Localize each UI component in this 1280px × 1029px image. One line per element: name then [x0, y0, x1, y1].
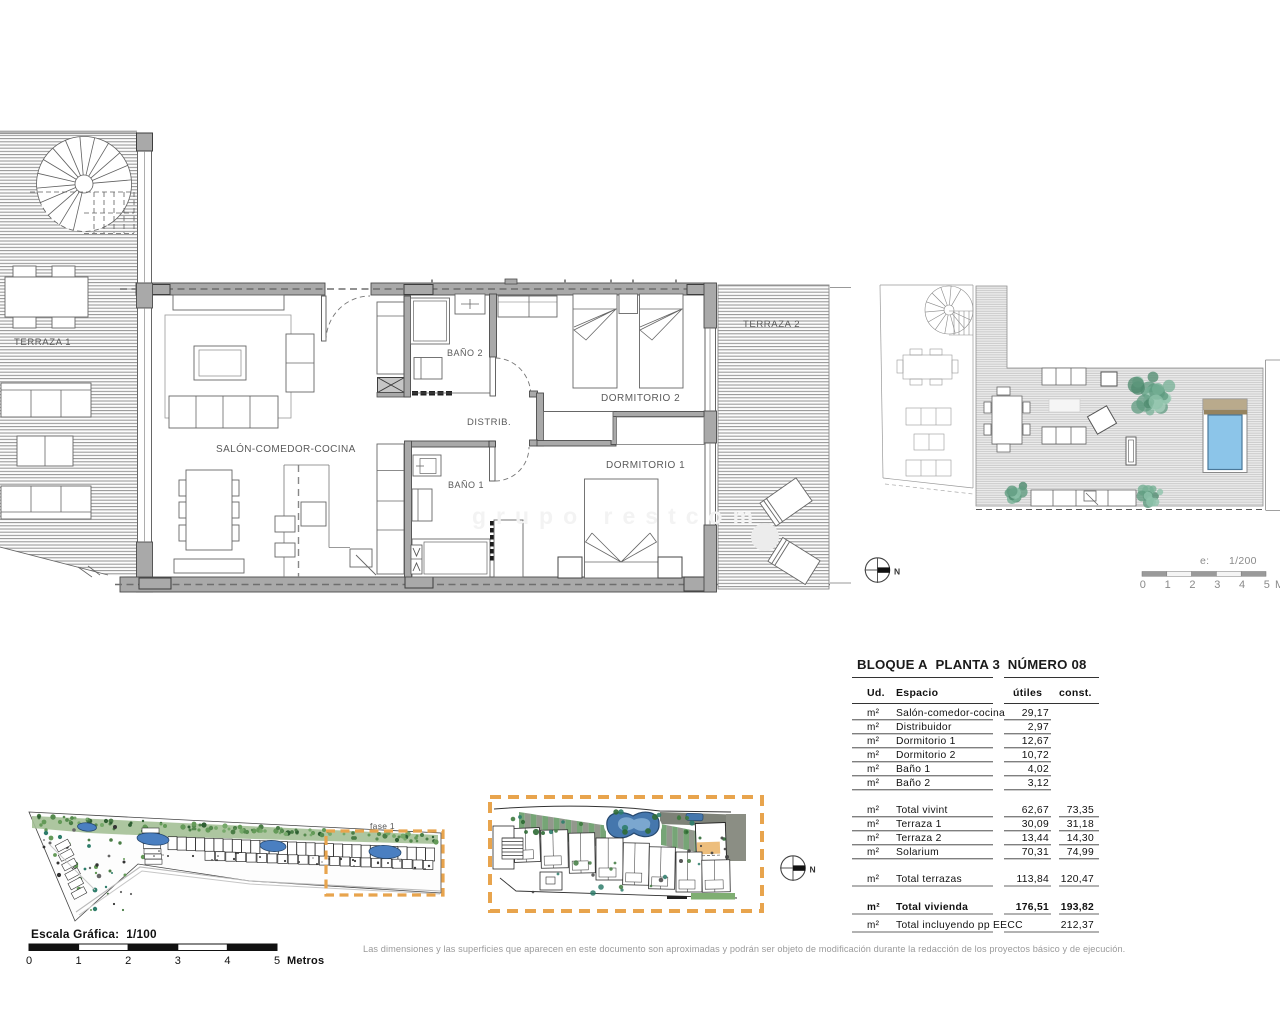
svg-text:2: 2: [125, 955, 131, 967]
svg-text:m²: m²: [867, 722, 880, 733]
svg-text:Total incluyendo pp EECC: Total incluyendo pp EECC: [896, 920, 1023, 931]
svg-text:m²: m²: [867, 902, 880, 913]
svg-text:Ud.: Ud.: [867, 687, 885, 699]
svg-text:BAÑO 2: BAÑO 2: [447, 348, 483, 358]
svg-text:BAÑO 1: BAÑO 1: [448, 480, 484, 490]
svg-text:Baño 2: Baño 2: [896, 778, 930, 789]
svg-text:m²: m²: [867, 805, 880, 816]
svg-text:e:: e:: [1200, 555, 1209, 567]
svg-text:SALÓN-COMEDOR-COCINA: SALÓN-COMEDOR-COCINA: [216, 442, 356, 455]
svg-text:120,47: 120,47: [1061, 874, 1094, 885]
svg-text:62,67: 62,67: [1022, 805, 1049, 816]
svg-text:5: 5: [1264, 579, 1270, 591]
svg-text:Espacio: Espacio: [896, 687, 938, 699]
svg-text:Solarium: Solarium: [896, 847, 939, 858]
svg-text:m²: m²: [867, 920, 880, 931]
svg-text:Total vivienda: Total vivienda: [896, 902, 968, 913]
svg-text:Dormitorio 1: Dormitorio 1: [896, 736, 956, 747]
svg-text:74,99: 74,99: [1067, 847, 1094, 858]
svg-text:DISTRIB.: DISTRIB.: [467, 417, 511, 428]
svg-text:29,17: 29,17: [1022, 708, 1049, 719]
svg-text:12,67: 12,67: [1022, 736, 1049, 747]
svg-text:1: 1: [76, 955, 82, 967]
svg-text:2: 2: [1189, 579, 1195, 591]
svg-text:3: 3: [1214, 579, 1220, 591]
svg-text:0: 0: [1140, 579, 1146, 591]
svg-text:5: 5: [274, 955, 280, 967]
svg-text:Dormitorio 2: Dormitorio 2: [896, 750, 956, 761]
svg-text:10,72: 10,72: [1022, 750, 1049, 761]
svg-text:fase 1: fase 1: [370, 821, 395, 831]
svg-text:4: 4: [1239, 579, 1245, 591]
svg-text:m²: m²: [867, 819, 880, 830]
svg-text:m²: m²: [867, 874, 880, 885]
svg-text:m²: m²: [867, 833, 880, 844]
svg-text:1: 1: [1165, 579, 1171, 591]
svg-text:212,37: 212,37: [1061, 920, 1094, 931]
svg-text:Salón-comedor-cocina: Salón-comedor-cocina: [896, 708, 1005, 719]
svg-text:TERRAZA 1: TERRAZA 1: [14, 337, 71, 348]
svg-text:m²: m²: [867, 708, 880, 719]
svg-text:Escala Gráfica: 1/100: Escala Gráfica: 1/100: [31, 927, 157, 941]
svg-text:m²: m²: [867, 778, 880, 789]
svg-text:m²: m²: [867, 750, 880, 761]
svg-text:DORMITORIO 2: DORMITORIO 2: [601, 393, 680, 404]
svg-text:73,35: 73,35: [1067, 805, 1094, 816]
svg-text:m²: m²: [867, 847, 880, 858]
svg-text:m²: m²: [867, 764, 880, 775]
svg-text:193,82: 193,82: [1061, 902, 1094, 913]
svg-text:3,12: 3,12: [1028, 778, 1049, 789]
svg-text:útiles: útiles: [1013, 687, 1042, 699]
svg-text:1/200: 1/200: [1229, 555, 1257, 567]
svg-text:M: M: [1275, 579, 1280, 591]
svg-text:2,97: 2,97: [1028, 722, 1049, 733]
svg-text:Terraza 2: Terraza 2: [896, 833, 942, 844]
svg-text:N: N: [810, 865, 816, 875]
svg-text:Distribuidor: Distribuidor: [896, 722, 952, 733]
svg-text:13,44: 13,44: [1022, 833, 1049, 844]
svg-text:N: N: [894, 567, 900, 577]
svg-text:0: 0: [26, 955, 32, 967]
svg-text:TERRAZA 2: TERRAZA 2: [743, 319, 800, 330]
svg-text:176,51: 176,51: [1016, 902, 1049, 913]
svg-text:const.: const.: [1059, 687, 1092, 699]
svg-text:m²: m²: [867, 736, 880, 747]
svg-text:grupo restcom: grupo restcom: [472, 503, 763, 529]
svg-text:14,30: 14,30: [1067, 833, 1094, 844]
svg-text:DORMITORIO 1: DORMITORIO 1: [606, 460, 685, 471]
svg-text:113,84: 113,84: [1016, 874, 1049, 885]
svg-text:4: 4: [224, 955, 230, 967]
svg-text:31,18: 31,18: [1067, 819, 1094, 830]
svg-text:3: 3: [175, 955, 181, 967]
svg-text:4,02: 4,02: [1028, 764, 1049, 775]
svg-text:Baño 1: Baño 1: [896, 764, 930, 775]
svg-text:Metros: Metros: [287, 955, 324, 967]
svg-text:Total terrazas: Total terrazas: [896, 874, 962, 885]
svg-text:Las dimensiones y las superfic: Las dimensiones y las superficies que ap…: [363, 944, 1125, 954]
svg-text:70,31: 70,31: [1022, 847, 1049, 858]
svg-text:BLOQUE A PLANTA 3 NÚMERO 08: BLOQUE A PLANTA 3 NÚMERO 08: [857, 657, 1087, 672]
svg-text:Terraza 1: Terraza 1: [896, 819, 942, 830]
svg-text:30,09: 30,09: [1022, 819, 1049, 830]
svg-text:Total vivint: Total vivint: [896, 805, 948, 816]
